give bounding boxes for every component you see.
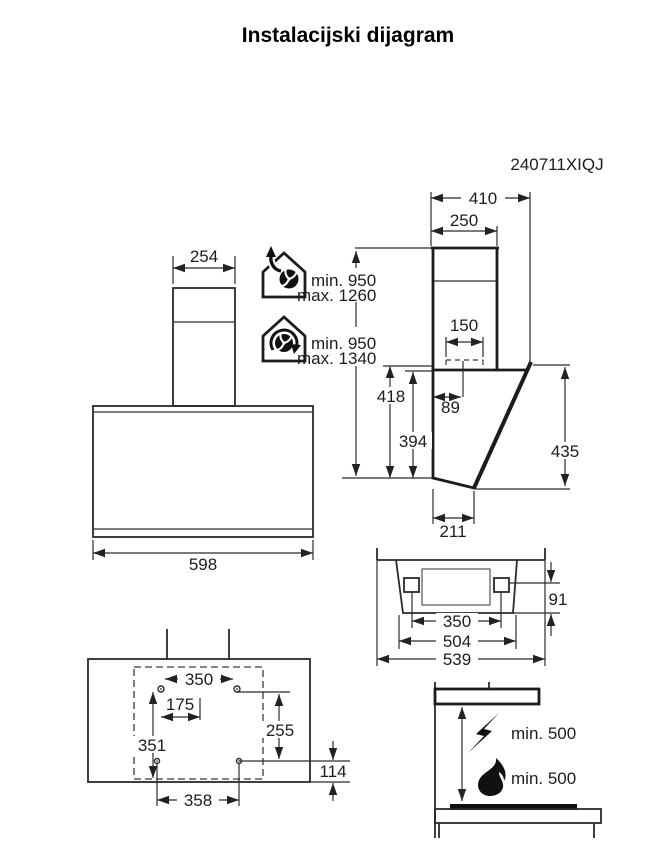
dim-lower-hole-spacing-label: 358 xyxy=(184,791,212,810)
dim-front-height-label: 418 xyxy=(377,387,405,406)
flame-icon xyxy=(478,758,506,796)
dim-overall-width-label: 539 xyxy=(443,650,471,669)
dim-chimney-depth-label: 250 xyxy=(450,211,478,230)
dim-overall-depth-label: 410 xyxy=(469,189,497,208)
dim-panel-height-label: 435 xyxy=(551,442,579,461)
dim-right-height-label: 255 xyxy=(266,721,294,740)
recirculation-max-label: max. 1340 xyxy=(297,349,376,368)
page-title: Instalacijski dijagram xyxy=(242,24,454,47)
gas-clearance-label: min. 500 xyxy=(511,769,576,788)
dim-upper-hole-spacing-label: 350 xyxy=(185,670,213,689)
top-view: 91 350 504 539 xyxy=(377,548,567,669)
dim-back-height-label: 394 xyxy=(399,432,427,451)
lightning-icon xyxy=(468,713,499,753)
dim-body-width-label: 598 xyxy=(189,555,217,574)
dim-bracket-spacing-label: 350 xyxy=(443,612,471,631)
dim-bracket-depth-label: 91 xyxy=(549,590,568,609)
installation-diagram: Instalacijski dijagram 240711XIQJ 254 59… xyxy=(0,0,671,842)
dim-left-height-label: 351 xyxy=(138,736,166,755)
dim-inner-width-label: 504 xyxy=(443,632,471,651)
model-number: 240711XIQJ xyxy=(510,155,603,174)
dim-lower-edge-offset-label: 114 xyxy=(319,762,346,781)
clearance-diagram: min. 500 min. 500 xyxy=(435,682,601,838)
dim-duct-width-label: 150 xyxy=(450,316,478,335)
drilling-template: 350 175 351 255 114 358 xyxy=(88,629,350,810)
dim-chimney-width-label: 254 xyxy=(190,247,218,266)
installation-diagram-page: Instalacijski dijagram 240711XIQJ 254 59… xyxy=(0,0,671,842)
electric-clearance-label: min. 500 xyxy=(511,724,576,743)
dim-duct-offset-label: 89 xyxy=(441,398,460,417)
exhaust-max-label: max. 1260 xyxy=(297,286,376,305)
dim-bottom-depth-label: 211 xyxy=(439,522,466,541)
side-view: 150 89 410 250 418 394 435 211 xyxy=(372,189,585,541)
dim-center-offset-label: 175 xyxy=(166,695,194,714)
